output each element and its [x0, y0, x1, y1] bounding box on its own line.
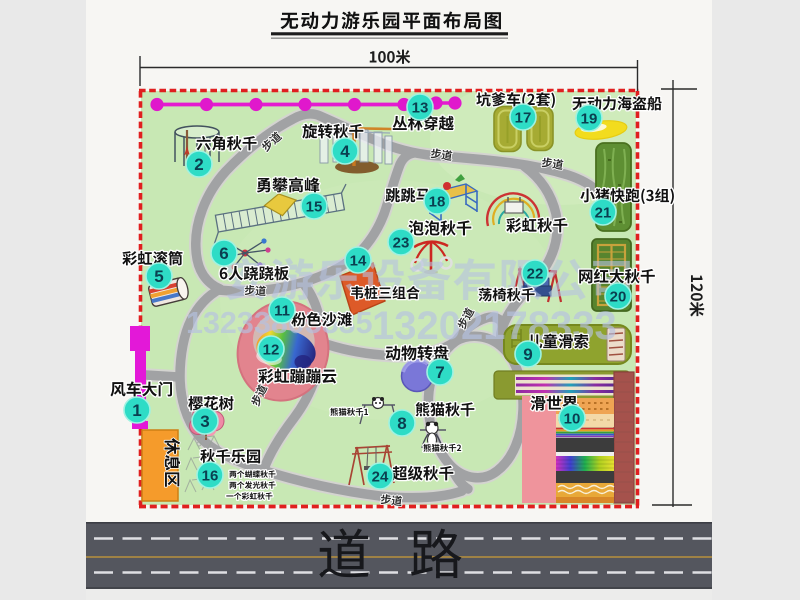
svg-text:7: 7	[435, 363, 444, 382]
svg-text:17: 17	[515, 109, 532, 126]
svg-text:6: 6	[219, 244, 228, 263]
svg-text:14: 14	[350, 252, 367, 269]
svg-text:23: 23	[393, 234, 410, 251]
svg-text:15: 15	[306, 198, 323, 215]
svg-text:16: 16	[202, 467, 219, 484]
svg-text:3: 3	[200, 412, 209, 431]
svg-text:5: 5	[154, 267, 163, 286]
svg-text:1: 1	[132, 401, 141, 420]
svg-text:21: 21	[595, 204, 612, 221]
svg-text:4: 4	[340, 142, 350, 161]
svg-text:24: 24	[372, 468, 389, 485]
svg-text:13: 13	[412, 99, 429, 116]
svg-text:11: 11	[274, 302, 290, 319]
svg-text:19: 19	[581, 110, 598, 127]
svg-text:2: 2	[194, 155, 203, 174]
svg-text:10: 10	[564, 410, 581, 427]
svg-text:18: 18	[429, 193, 446, 210]
svg-text:22: 22	[527, 265, 544, 282]
svg-text:9: 9	[523, 345, 532, 364]
svg-text:8: 8	[397, 414, 406, 433]
svg-text:20: 20	[610, 288, 627, 305]
svg-text:12: 12	[263, 341, 280, 358]
